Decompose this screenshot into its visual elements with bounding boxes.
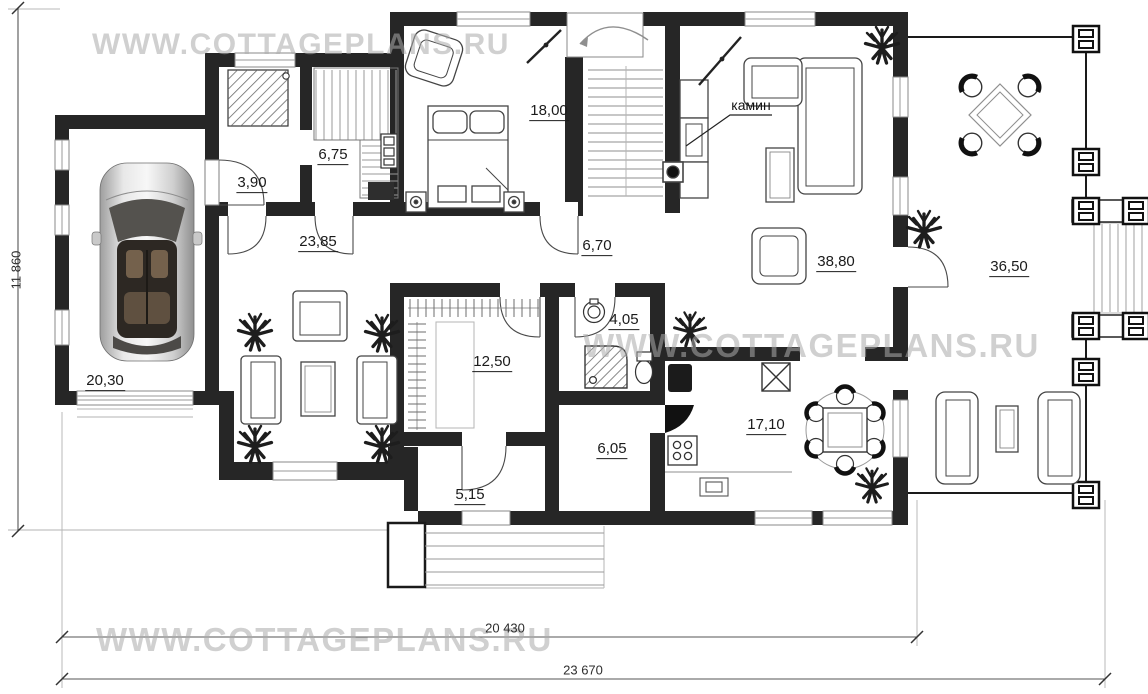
coffee-table: [301, 362, 335, 416]
radiator-icon: [406, 192, 426, 212]
fridge-icon: [668, 364, 692, 392]
sofa: [357, 356, 397, 424]
tv-icon: [699, 37, 741, 85]
sauna-room: [314, 68, 398, 200]
toilet-icon: [636, 352, 653, 384]
car: [92, 163, 202, 361]
armchair: [403, 27, 465, 88]
sofa: [241, 356, 281, 424]
corner-sofa: [744, 58, 862, 194]
radiator-icon: [504, 192, 524, 212]
outdoor-sofas: [936, 392, 1080, 484]
chimney-icon: [663, 162, 683, 182]
kitchen-furniture: [665, 363, 887, 496]
shower-icon: [585, 346, 627, 388]
armchair: [752, 228, 806, 284]
sofa: [293, 291, 347, 341]
fireplace: [680, 80, 708, 198]
entry-steps: [425, 533, 604, 585]
dining-set: [803, 387, 886, 474]
vent-shaft-icon: [762, 363, 790, 391]
sauna-stove-icon: [381, 134, 397, 168]
entry-porch: [388, 523, 604, 587]
coffee-table: [766, 148, 794, 202]
terrace-side-steps: [1086, 223, 1148, 313]
dining-table: [823, 408, 867, 452]
sink-icon: [584, 299, 605, 323]
living-room-furniture: [663, 37, 862, 284]
kitchen-sink-icon: [700, 478, 728, 496]
wardrobe-furniture: [408, 299, 540, 430]
garage: [92, 163, 202, 361]
floor-plan-page: WWW.COTTAGEPLANS.RU WWW.COTTAGEPLANS.RU …: [0, 0, 1148, 694]
floor-plan-drawing: [0, 0, 1148, 694]
shower-room: [228, 70, 289, 126]
tv-icon: [527, 30, 561, 63]
bathroom-fixtures: [584, 299, 653, 388]
hall-furniture: [241, 291, 397, 424]
stove-icon: [668, 436, 697, 465]
outdoor-dining: [957, 72, 1043, 158]
bedroom-furniture: [403, 27, 561, 212]
